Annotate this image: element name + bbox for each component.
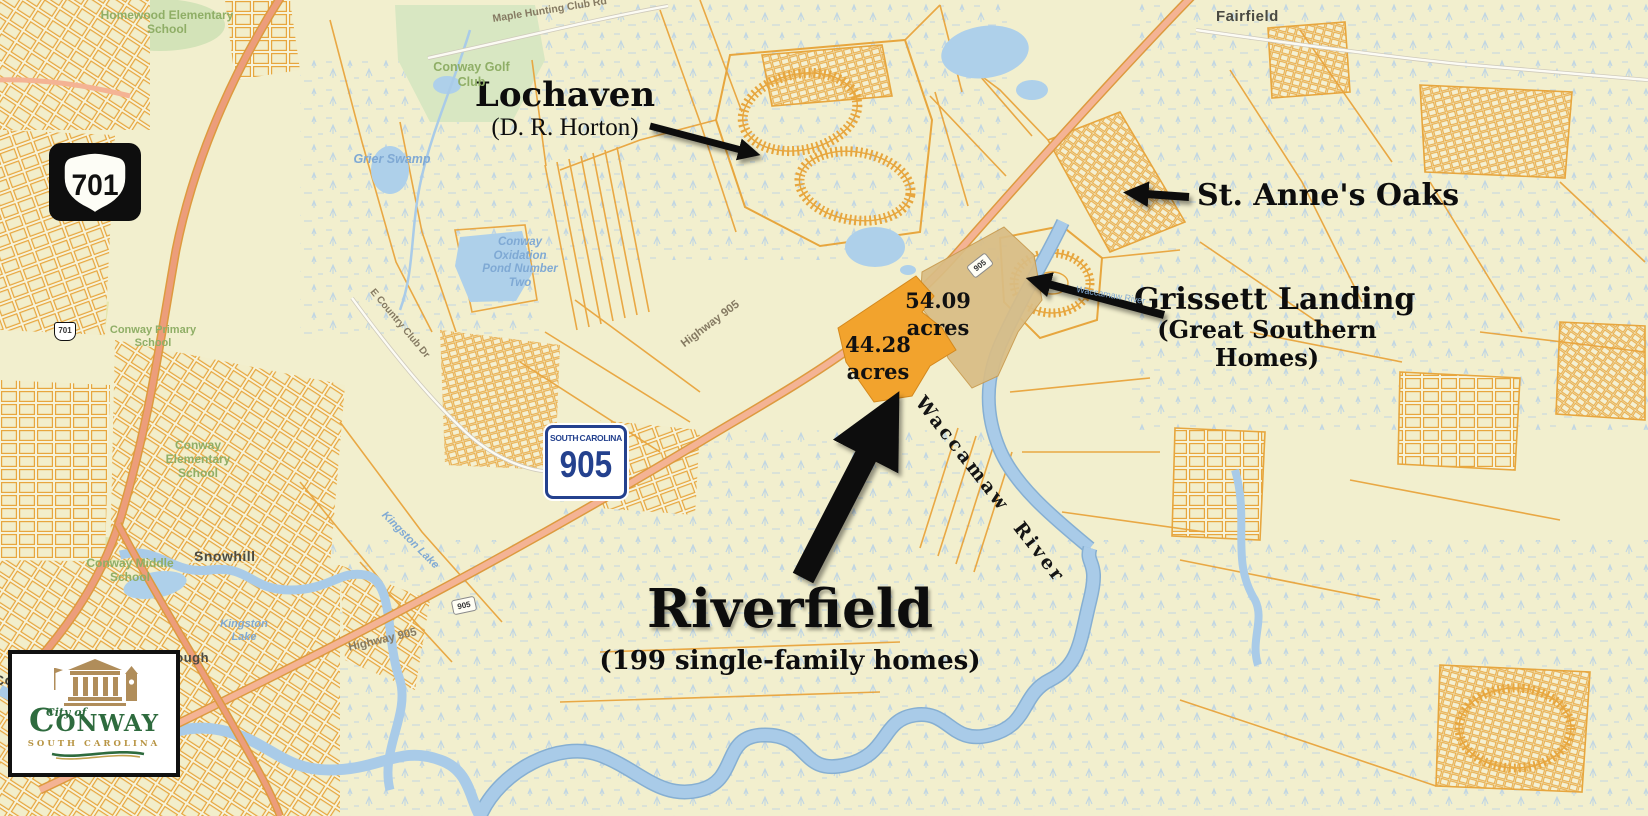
logo-city-of: City of	[46, 706, 86, 719]
riverfield-detail-label: (199 single-family homes)	[590, 646, 990, 677]
city-of-conway-logo: City of CONWAY SOUTH CAROLINA	[8, 650, 180, 777]
map-canvas	[0, 0, 1648, 816]
kingston-lake-label: Kingston Lake	[208, 618, 280, 644]
homewood-school-label: Homewood Elementary School	[92, 8, 242, 36]
st-annes-oaks-label: St. Anne's Oaks	[1197, 178, 1459, 213]
us-701-shield: 701	[48, 142, 142, 222]
st-annes-arrow	[1146, 194, 1189, 197]
us-701-number: 701	[71, 169, 118, 202]
grissett-developer-label: (Great Southern Homes)	[1112, 316, 1422, 373]
grier-swamp-label: Grier Swamp	[352, 152, 432, 167]
wave-icon	[50, 750, 146, 760]
courthouse-icon	[50, 658, 142, 710]
golf-club-label: Conway Golf Club	[424, 60, 519, 90]
acreage-44-label: 44.28 acres	[826, 331, 930, 386]
mini-us-701-shield: 701	[54, 322, 76, 341]
oxidation-pond-label: Conway Oxidation Pond Number Two	[478, 236, 562, 290]
sc905-south: SOUTH	[550, 433, 578, 443]
logo-state: SOUTH CAROLINA	[12, 739, 176, 749]
acreage-44-value: 44.28	[826, 331, 930, 358]
riverfield-label: Riverfield	[590, 578, 990, 641]
map-page: Lochaven (D. R. Horton) St. Anne's Oaks …	[0, 0, 1648, 816]
fairfield-label: Fairfield	[1216, 8, 1279, 26]
acreage-54-value: 54.09	[886, 287, 990, 314]
sc-905-number: 905	[560, 446, 612, 483]
primary-school-label: Conway Primary School	[108, 324, 198, 350]
grissett-landing-label: Grissett Landing	[1134, 282, 1415, 317]
acreage-44-unit: acres	[826, 358, 930, 385]
snowhill-label: Snowhill	[194, 548, 256, 565]
elementary-school-label: Conway Elementary School	[152, 438, 244, 480]
middle-school-label: Conway Middle School	[76, 556, 184, 584]
lochaven-pond	[845, 227, 905, 267]
sc-905-shield: SOUTH CAROLINA 905	[545, 425, 627, 499]
lochaven-developer-label: (D. R. Horton)	[425, 113, 705, 143]
sc905-carolina: CAROLINA	[580, 433, 622, 443]
